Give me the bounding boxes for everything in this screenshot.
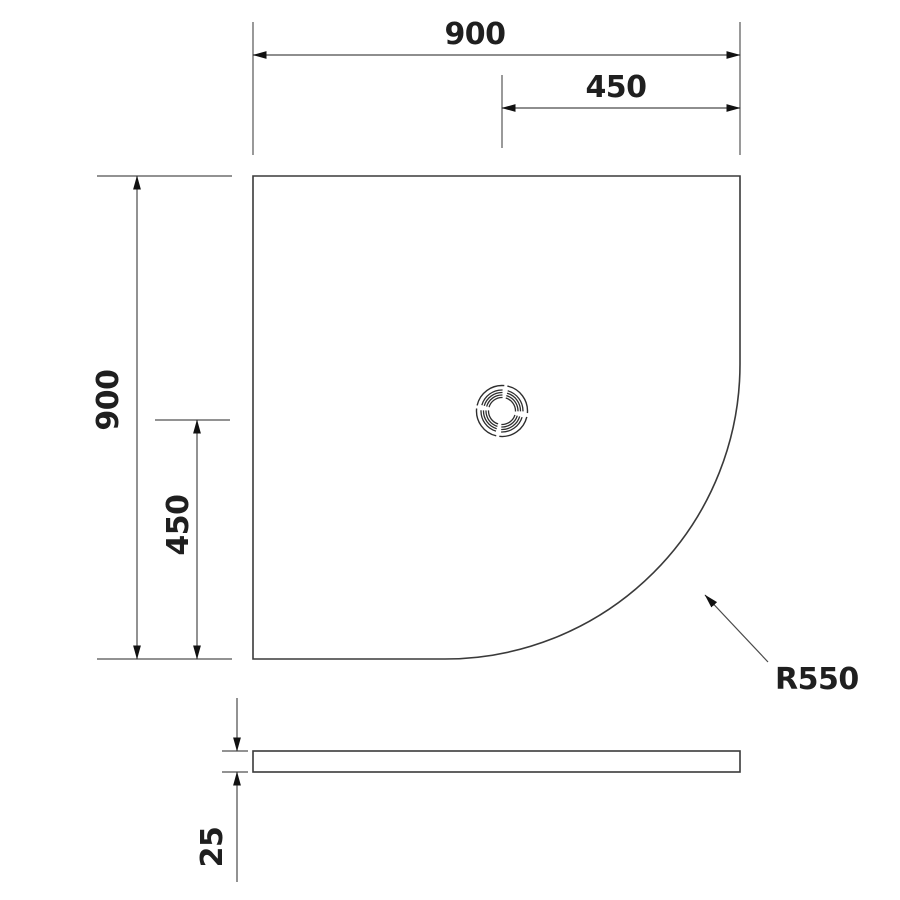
radius-leader-arrow (705, 595, 768, 662)
dimension-plan-width: 900 (253, 17, 740, 155)
dimension-plan-half-width: 450 (502, 70, 740, 148)
dimension-value: 900 (91, 369, 126, 430)
dimension-value: 25 (195, 827, 230, 868)
plan-view (253, 176, 740, 659)
dimension-value: 450 (161, 494, 196, 555)
tray-side-profile (253, 751, 740, 772)
dimension-value: 450 (585, 70, 646, 105)
radius-callout: R550 (705, 595, 859, 697)
tray-plan-outline (253, 176, 740, 659)
shower-tray-drawing: 900 450 900 450 R550 (0, 0, 900, 900)
side-view (253, 751, 740, 772)
dimension-plan-half-height: 450 (155, 420, 230, 659)
dimension-plan-height: 900 (91, 176, 232, 659)
dimension-side-thickness: 25 (195, 698, 248, 882)
dimension-value: 900 (444, 17, 505, 52)
radius-value: R550 (775, 662, 859, 697)
technical-drawing-page: 900 450 900 450 R550 (0, 0, 900, 900)
